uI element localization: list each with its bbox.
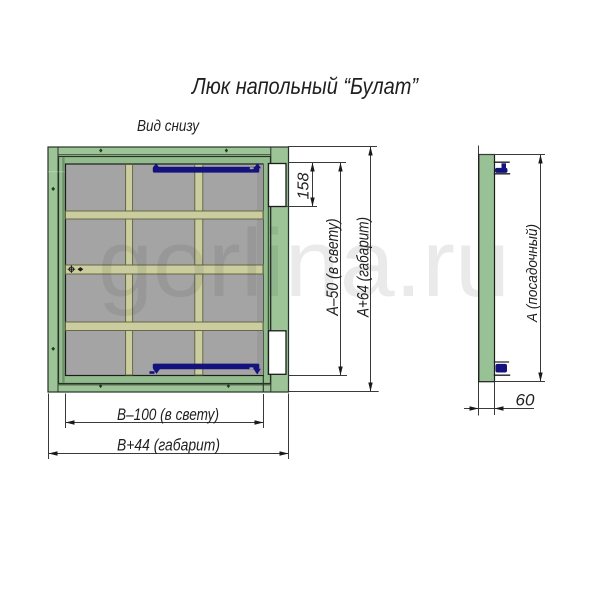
svg-text:В+44 (габарит): В+44 (габарит): [117, 436, 220, 455]
svg-text:А+64 (габарит): А+64 (габарит): [355, 217, 373, 318]
svg-text:В–100 (в свету): В–100 (в свету): [117, 405, 219, 424]
svg-text:А–50 (в свету): А–50 (в свету): [324, 219, 342, 317]
svg-text:А (посадочный): А (посадочный): [524, 224, 541, 323]
svg-text:Люк напольный “Булат”: Люк напольный “Булат”: [190, 73, 419, 99]
svg-text:158: 158: [296, 173, 313, 200]
svg-text:gorlina.ru: gorlina.ru: [98, 210, 510, 317]
svg-text:Вид снизу: Вид снизу: [137, 118, 200, 135]
svg-text:60: 60: [516, 391, 535, 410]
